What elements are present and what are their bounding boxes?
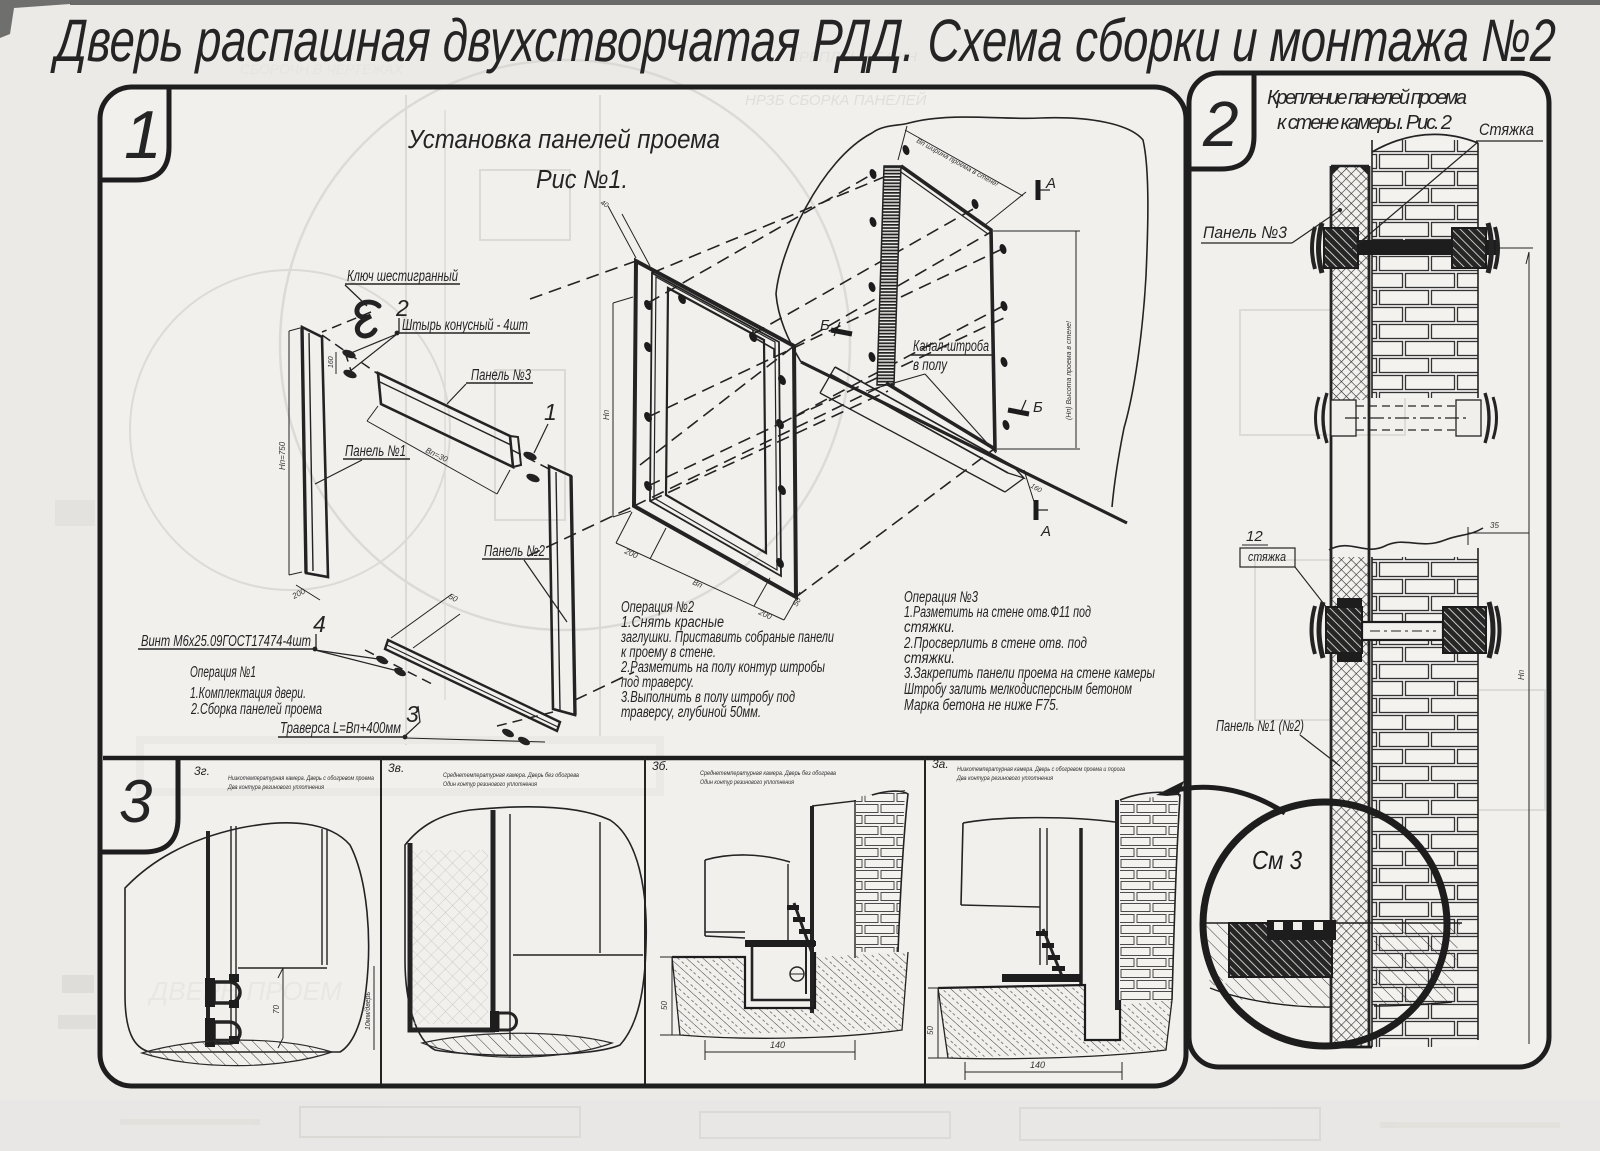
svg-text:Среднетемпературная камера. Дв: Среднетемпературная камера. Дверь без об… — [700, 769, 836, 777]
svg-text:3: 3 — [119, 768, 152, 835]
svg-text:140: 140 — [1030, 1060, 1045, 1070]
svg-text:12: 12 — [1246, 528, 1263, 545]
svg-text:Панель №1 (№2): Панель №1 (№2) — [1216, 718, 1304, 735]
svg-text:А: А — [1045, 175, 1056, 192]
svg-text:Операция №1: Операция №1 — [190, 664, 256, 681]
svg-text:Штробу залить мелкодисперсным: Штробу залить мелкодисперсным бетоном — [904, 681, 1132, 698]
svg-text:Б: Б — [820, 317, 830, 334]
svg-text:Винт М6х25.09ГОСТ17474-4шт: Винт М6х25.09ГОСТ17474-4шт — [141, 633, 311, 650]
svg-text:Рис №1.: Рис №1. — [536, 166, 628, 194]
svg-text:Дверь распашная двухстворчатая: Дверь распашная двухстворчатая РДД. Схем… — [50, 7, 1557, 74]
svg-text:10мм/дверь: 10мм/дверь — [364, 992, 372, 1030]
svg-text:в полу: в полу — [913, 357, 948, 374]
svg-text:3.Закрепить панели проема на с: 3.Закрепить панели проема на стене камер… — [904, 665, 1155, 682]
svg-text:Два контура резинового уплотне: Два контура резинового уплотнения — [227, 784, 324, 791]
svg-text:1.Комплектация двери.: 1.Комплектация двери. — [190, 685, 306, 702]
svg-text:4: 4 — [313, 611, 326, 637]
svg-text:3в.: 3в. — [388, 761, 404, 775]
svg-text:Нп: Нп — [602, 409, 611, 420]
svg-text:Низкотемпературная камера. Две: Низкотемпературная камера. Дверь с обогр… — [228, 774, 374, 782]
svg-text:1: 1 — [544, 399, 557, 425]
svg-text:Панель №1: Панель №1 — [345, 443, 406, 460]
svg-text:См 3: См 3 — [1252, 845, 1302, 875]
svg-text:Один контур резинового уплотне: Один контур резинового уплотнения — [443, 780, 537, 788]
svg-text:140: 140 — [770, 1040, 785, 1050]
svg-text:Штырь конусный - 4шт: Штырь конусный - 4шт — [402, 317, 528, 334]
svg-text:Панель №3: Панель №3 — [1203, 223, 1287, 242]
svg-text:160: 160 — [328, 356, 335, 368]
svg-text:3б.: 3б. — [652, 759, 669, 773]
svg-text:3а.: 3а. — [932, 757, 949, 771]
svg-text:3: 3 — [406, 701, 419, 727]
svg-text:стяжка: стяжка — [1248, 549, 1286, 564]
svg-text:Среднетемпературная камера. Дв: Среднетемпературная камера. Дверь без об… — [443, 771, 579, 779]
svg-text:3г.: 3г. — [194, 764, 210, 778]
svg-text:(Нп) Высота проема в стене!: (Нп) Высота проема в стене! — [1066, 321, 1073, 420]
svg-text:Нп=750: Нп=750 — [278, 441, 287, 470]
svg-text:Канал-штроба: Канал-штроба — [913, 338, 989, 355]
svg-text:50: 50 — [660, 1001, 669, 1010]
svg-text:2: 2 — [1202, 88, 1239, 160]
svg-text:1: 1 — [124, 97, 162, 173]
svg-text:2.Сборка панелей проема: 2.Сборка панелей проема — [190, 701, 322, 718]
svg-text:Панель №3: Панель №3 — [471, 367, 531, 384]
svg-text:70: 70 — [272, 1005, 281, 1014]
svg-text:Крепление панелей проема: Крепление панелей проема — [1267, 87, 1467, 109]
svg-text:А: А — [1040, 523, 1051, 540]
svg-text:НРЗБ СБОРКА ПАНЕЛЕЙ: НРЗБ СБОРКА ПАНЕЛЕЙ — [745, 91, 927, 109]
svg-text:траверсу, глубиной 50мм.: траверсу, глубиной 50мм. — [621, 704, 761, 721]
svg-text:Марка бетона не ниже F75.: Марка бетона не ниже F75. — [904, 697, 1059, 714]
svg-text:Стяжка: Стяжка — [1479, 120, 1534, 139]
svg-text:Низкотемпературная камера. Две: Низкотемпературная камера. Дверь с обогр… — [957, 765, 1125, 773]
svg-text:ДВЕРН ПРОЕМ: ДВЕРН ПРОЕМ — [147, 976, 342, 1006]
svg-text:Установка панелей проема: Установка панелей проема — [407, 126, 720, 154]
svg-text:35: 35 — [1490, 521, 1499, 530]
svg-text:Траверса L=Вп+400мм: Траверса L=Вп+400мм — [280, 720, 401, 737]
svg-text:Нп: Нп — [1517, 669, 1526, 680]
svg-text:Один контур резинового уплотне: Один контур резинового уплотнения — [700, 778, 794, 786]
svg-text:Б: Б — [1033, 399, 1043, 416]
svg-text:к стене камеры. Рис. 2: к стене камеры. Рис. 2 — [1277, 112, 1452, 134]
svg-text:стяжки.: стяжки. — [904, 619, 955, 636]
svg-text:Два контура резинового уплотне: Два контура резинового уплотнения — [956, 775, 1053, 782]
svg-text:50: 50 — [926, 1026, 935, 1035]
svg-text:Ключ шестигранный: Ключ шестигранный — [347, 268, 458, 285]
